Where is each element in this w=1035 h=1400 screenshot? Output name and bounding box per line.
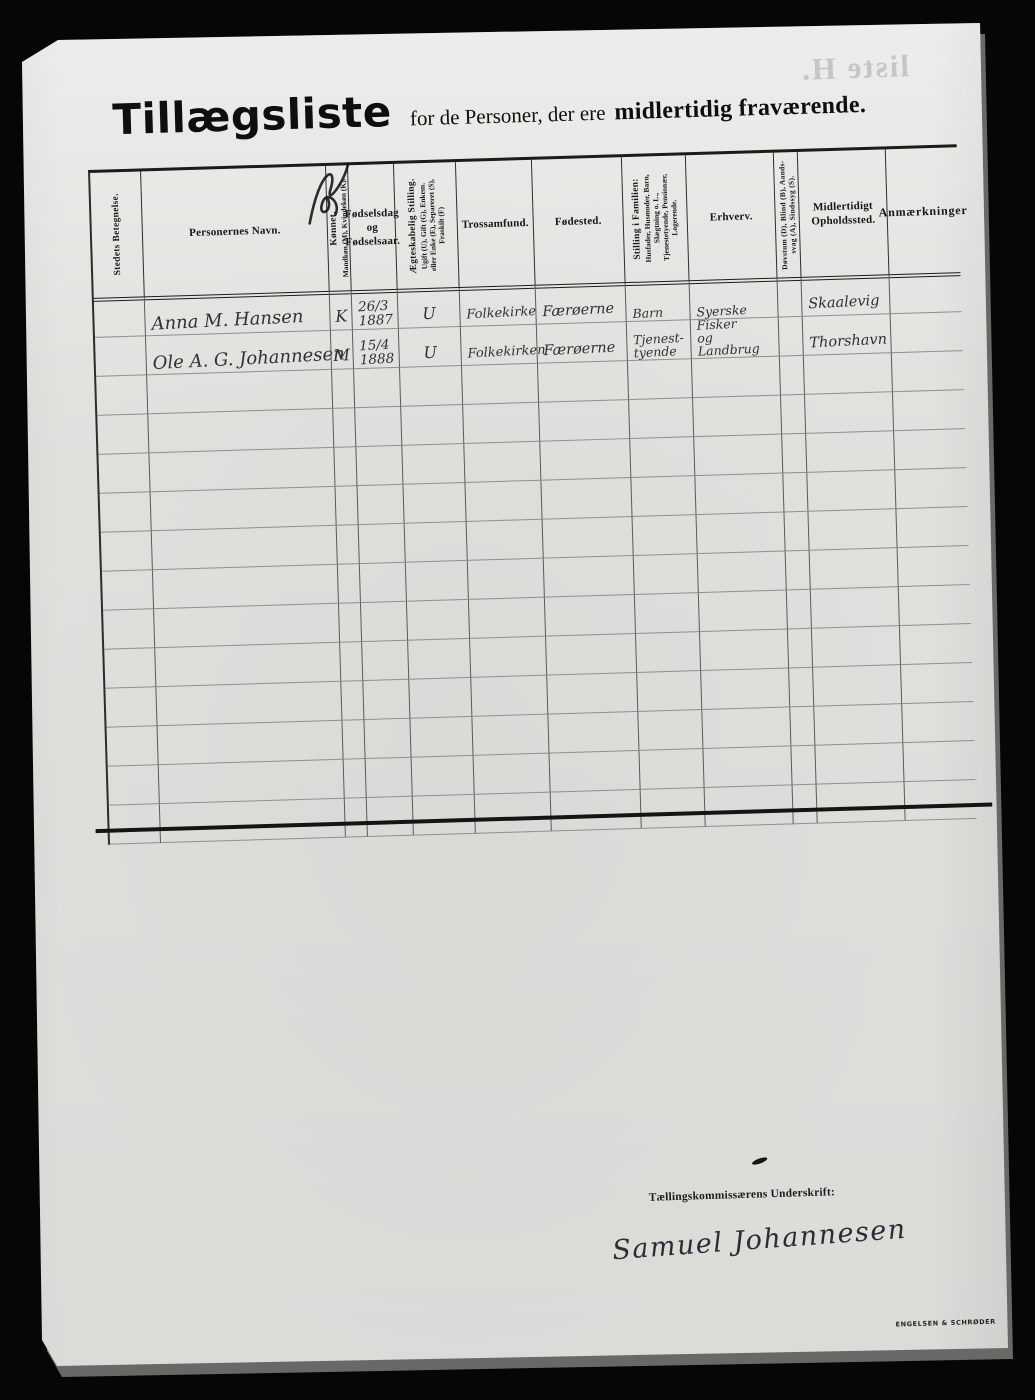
cell-midlertidigt-opholdssted-row6 xyxy=(806,470,895,512)
cell-anmaerkninger-row2 xyxy=(890,312,963,353)
cell-erhverv-row11 xyxy=(700,668,789,710)
vertical-header-text: Ægteskabelig Stilling.Ugift (U), Gift (G… xyxy=(406,177,447,273)
cell-trossamfund-row7 xyxy=(466,520,543,561)
cell-midlertidigt-opholdssted-row12 xyxy=(813,704,902,746)
cell-midlertidigt-opholdssted-row10 xyxy=(811,626,900,668)
cell-fodested-row9 xyxy=(544,595,635,637)
cell-dovstum-blind-row2 xyxy=(778,317,803,357)
cell-midlertidigt-opholdssted-row1: Skaalevig xyxy=(801,275,890,317)
cell-fodselsdag-row2: 15/4 1888 xyxy=(352,329,399,369)
cell-fodselsdag-row1: 26/3 1887 xyxy=(351,290,398,330)
cell-midlertidigt-opholdssted-row4 xyxy=(804,392,893,434)
printer-imprint: ENGELSEN & SCHRØDER xyxy=(895,1318,995,1329)
cell-konnet-row7 xyxy=(336,525,359,565)
cell-fodested-row4 xyxy=(538,400,629,442)
cell-erhverv-row5 xyxy=(693,435,782,477)
handwritten-entry: Skaalevig xyxy=(802,293,882,316)
cell-erhverv-row13 xyxy=(702,746,791,788)
census-form-page: liste H. Tillægsliste for de Personer, d… xyxy=(0,0,1035,1400)
cell-konnet-row5 xyxy=(333,447,356,487)
cell-aegteskabelig-stilling-row1: U xyxy=(397,288,460,329)
cell-fodselsdag-row13 xyxy=(365,758,412,798)
cell-personernes-navn-row8 xyxy=(152,565,338,609)
cell-stilling-i-familien-row12 xyxy=(637,710,702,751)
cell-trossamfund-row11 xyxy=(470,676,547,717)
column-label: Døvstum (D), Blind (B), Aands- svag (A),… xyxy=(777,160,798,270)
cell-personernes-navn-row7 xyxy=(151,526,337,570)
vertical-header-text: Døvstum (D), Blind (B), Aands- svag (A),… xyxy=(777,160,798,270)
cell-anmaerkninger-row1 xyxy=(888,273,961,314)
cell-dovstum-blind-row14 xyxy=(792,785,817,825)
cell-dovstum-blind-row8 xyxy=(785,551,810,591)
cell-aegteskabelig-stilling-row3 xyxy=(399,366,462,407)
cell-konnet-row3 xyxy=(331,369,354,409)
cell-konnet-row8 xyxy=(337,564,360,604)
vertical-header-text: Stilling i Familien:Husfader, Husmoder, … xyxy=(630,174,680,263)
column-label: Fødselsdag og Fødselsaar. xyxy=(344,205,400,249)
column-header-personernes-navn: Personernes Navn. xyxy=(140,166,329,297)
cell-midlertidigt-opholdssted-row9 xyxy=(810,587,899,629)
title-subtitle: for de Personer, der ere xyxy=(410,101,606,132)
cell-stedets-betegnelse-row9 xyxy=(103,609,154,649)
handwritten-entry: Færøerne xyxy=(536,301,617,324)
cell-fodested-row13 xyxy=(549,751,640,793)
census-table-grid: Stedets Betegnelse.Personernes Navn.Kønn… xyxy=(88,144,977,844)
cell-fodselsdag-row5 xyxy=(355,446,402,486)
cell-anmaerkninger-row5 xyxy=(893,429,966,470)
cell-personernes-navn-row6 xyxy=(150,487,336,531)
cell-stilling-i-familien-row1: Barn xyxy=(625,281,690,322)
cell-anmaerkninger-row4 xyxy=(892,390,965,431)
cell-konnet-row13 xyxy=(343,759,366,799)
cell-personernes-navn-row3 xyxy=(146,370,332,414)
cell-fodselsdag-row11 xyxy=(362,680,409,720)
cell-anmaerkninger-row9 xyxy=(898,585,971,626)
cell-personernes-navn-row14 xyxy=(159,799,345,843)
cell-dovstum-blind-row9 xyxy=(786,590,811,630)
cell-fodested-row2: Færøerne xyxy=(536,322,627,364)
handwritten-entry: Barn xyxy=(626,306,665,322)
cell-erhverv-row9 xyxy=(698,590,787,632)
cell-erhverv-row14 xyxy=(704,785,793,827)
cell-stilling-i-familien-row8 xyxy=(633,554,698,595)
cell-fodested-row6 xyxy=(540,478,631,520)
cell-midlertidigt-opholdssted-row11 xyxy=(812,665,901,707)
handwritten-entry: Tjenest- tyende xyxy=(627,331,687,361)
cell-erhverv-row10 xyxy=(699,629,788,671)
handwritten-entry: 26/3 1887 xyxy=(352,299,396,330)
column-header-stedets-betegnelse: Stedets Betegnelse. xyxy=(90,171,144,298)
column-label: Personernes Navn. xyxy=(189,223,281,240)
cell-stilling-i-familien-row11 xyxy=(636,671,701,712)
cell-aegteskabelig-stilling-row14 xyxy=(412,795,475,836)
form-title: Tillægsliste for de Personer, der ere mi… xyxy=(112,73,867,144)
cell-anmaerkninger-row14 xyxy=(904,780,977,821)
cell-midlertidigt-opholdssted-row5 xyxy=(805,431,894,473)
cell-personernes-navn-row11 xyxy=(155,682,341,726)
cell-erhverv-row1: Syerske xyxy=(689,279,778,321)
cell-anmaerkninger-row7 xyxy=(895,507,968,548)
cell-aegteskabelig-stilling-row13 xyxy=(411,756,474,797)
cell-fodselsdag-row7 xyxy=(358,524,405,564)
cell-konnet-row1: K xyxy=(329,291,352,331)
cell-konnet-row4 xyxy=(332,408,355,448)
form-content: Tillægsliste for de Personer, der ere mi… xyxy=(86,70,1006,1376)
cell-stilling-i-familien-row14 xyxy=(640,788,705,829)
cell-dovstum-blind-row4 xyxy=(780,395,805,435)
cell-stilling-i-familien-row5 xyxy=(629,437,694,478)
column-header-fodselsdag: Fødselsdag og Fødselsaar. xyxy=(347,164,397,291)
cell-fodselsdag-row3 xyxy=(353,368,400,408)
cell-aegteskabelig-stilling-row11 xyxy=(408,678,471,719)
cell-fodested-row1: Færøerne xyxy=(535,283,626,325)
cell-dovstum-blind-row10 xyxy=(787,629,812,669)
cell-dovstum-blind-row6 xyxy=(782,473,807,513)
cell-stedets-betegnelse-row14 xyxy=(109,804,160,844)
cell-erhverv-row12 xyxy=(701,707,790,749)
cell-fodested-row14 xyxy=(550,790,641,832)
cell-stedets-betegnelse-row7 xyxy=(101,531,152,571)
cell-midlertidigt-opholdssted-row14 xyxy=(816,782,905,824)
cell-aegteskabelig-stilling-row4 xyxy=(400,405,463,446)
title-main: Tillægsliste xyxy=(112,87,393,144)
cell-stilling-i-familien-row2: Tjenest- tyende xyxy=(626,320,691,361)
cell-personernes-navn-row9 xyxy=(153,604,339,648)
cell-konnet-row6 xyxy=(335,486,358,526)
cell-anmaerkninger-row12 xyxy=(901,702,974,743)
column-sublabel: Ugift (U), Gift (G), Enkem. eller Enke (… xyxy=(417,177,447,273)
cell-fodested-row11 xyxy=(546,673,637,715)
cell-fodested-row12 xyxy=(547,712,638,754)
scanned-photo-background: liste H. Tillægsliste for de Personer, d… xyxy=(0,0,1035,1400)
cell-aegteskabelig-stilling-row8 xyxy=(405,561,468,602)
cell-trossamfund-row14 xyxy=(474,793,551,834)
cell-stilling-i-familien-row10 xyxy=(635,632,700,673)
column-header-stilling-i-familien: Stilling i Familien:Husfader, Husmoder, … xyxy=(621,155,689,283)
cell-trossamfund-row9 xyxy=(468,598,545,639)
cell-fodested-row5 xyxy=(539,439,630,481)
cell-stilling-i-familien-row7 xyxy=(632,515,697,556)
handwritten-entry: U xyxy=(423,345,438,366)
cell-midlertidigt-opholdssted-row13 xyxy=(814,743,903,785)
handwritten-entry: K xyxy=(335,308,348,329)
column-header-trossamfund: Trossamfund. xyxy=(455,160,535,288)
cell-fodested-row10 xyxy=(545,634,636,676)
cell-trossamfund-row5 xyxy=(463,442,540,483)
cell-konnet-row2: M xyxy=(330,330,353,370)
cell-stedets-betegnelse-row10 xyxy=(104,648,155,688)
cell-anmaerkninger-row10 xyxy=(899,624,972,665)
cell-trossamfund-row1: Folkekirke xyxy=(459,286,536,327)
cell-midlertidigt-opholdssted-row2: Thorshavn xyxy=(802,314,891,356)
cell-fodselsdag-row9 xyxy=(360,602,407,642)
column-header-aegteskabelig-stilling: Ægteskabelig Stilling.Ugift (U), Gift (G… xyxy=(393,162,459,290)
cell-trossamfund-row6 xyxy=(464,481,541,522)
column-header-fodested: Fødested. xyxy=(531,157,625,286)
cell-aegteskabelig-stilling-row2: U xyxy=(398,327,461,368)
handwritten-entry: Folkekirke xyxy=(460,305,538,327)
handwritten-entry: Færøerne xyxy=(537,340,618,363)
cell-konnet-row12 xyxy=(341,720,364,760)
cell-trossamfund-row12 xyxy=(471,715,548,756)
cell-personernes-navn-row4 xyxy=(147,409,333,453)
cell-personernes-navn-row13 xyxy=(158,760,344,804)
cell-aegteskabelig-stilling-row9 xyxy=(406,600,469,641)
cell-stedets-betegnelse-row5 xyxy=(98,453,149,493)
cell-dovstum-blind-row3 xyxy=(779,356,804,396)
column-header-midlertidigt-opholdssted: Midlertidigt Opholdssted. xyxy=(797,149,889,278)
cell-konnet-row11 xyxy=(340,681,363,721)
cell-stilling-i-familien-row3 xyxy=(627,359,692,400)
title-emphasis: midlertidig fraværende. xyxy=(614,92,866,126)
cell-anmaerkninger-row6 xyxy=(894,468,967,509)
cell-dovstum-blind-row7 xyxy=(783,512,808,552)
handwritten-entry: Thorshavn xyxy=(803,332,890,356)
cell-midlertidigt-opholdssted-row7 xyxy=(807,509,896,551)
cell-fodselsdag-row10 xyxy=(361,641,408,681)
cell-trossamfund-row13 xyxy=(473,754,550,795)
cell-konnet-row9 xyxy=(338,603,361,643)
cell-stedets-betegnelse-row11 xyxy=(105,687,156,727)
cell-personernes-navn-row2: Ole A. G. Johannesen xyxy=(145,331,331,375)
cell-stilling-i-familien-row6 xyxy=(630,476,695,517)
cell-midlertidigt-opholdssted-row3 xyxy=(803,353,892,395)
handwritten-entry: M xyxy=(333,347,350,369)
cell-konnet-row10 xyxy=(339,642,362,682)
signature-label: Tællingskommissærens Underskrift: xyxy=(649,1186,836,1204)
cell-aegteskabelig-stilling-row7 xyxy=(404,522,467,563)
cell-konnet-row14 xyxy=(344,798,367,838)
cell-midlertidigt-opholdssted-row8 xyxy=(809,548,898,590)
column-label: Anmærkninger xyxy=(878,202,967,219)
cell-anmaerkninger-row8 xyxy=(897,546,970,587)
cell-stedets-betegnelse-row6 xyxy=(100,492,151,532)
cell-anmaerkninger-row3 xyxy=(891,351,964,392)
cell-fodselsdag-row4 xyxy=(354,407,401,447)
cell-fodested-row8 xyxy=(543,556,634,598)
cell-dovstum-blind-row5 xyxy=(781,434,806,474)
cell-stilling-i-familien-row4 xyxy=(628,398,693,439)
cell-aegteskabelig-stilling-row6 xyxy=(402,483,465,524)
handwritten-entry: 15/4 1888 xyxy=(353,338,397,369)
cell-aegteskabelig-stilling-row12 xyxy=(409,717,472,758)
cell-stilling-i-familien-row9 xyxy=(634,593,699,634)
cell-erhverv-row4 xyxy=(692,396,781,438)
cell-stedets-betegnelse-row8 xyxy=(102,570,153,610)
handwritten-entry: Folkekirken xyxy=(461,344,548,366)
cell-stilling-i-familien-row13 xyxy=(638,749,703,790)
cell-fodselsdag-row8 xyxy=(359,563,406,603)
cell-trossamfund-row3 xyxy=(461,364,538,405)
cell-fodselsdag-row14 xyxy=(366,797,413,837)
cell-anmaerkninger-row11 xyxy=(900,663,973,704)
column-label: Erhverv. xyxy=(710,209,753,224)
cell-aegteskabelig-stilling-row5 xyxy=(401,444,464,485)
cell-stedets-betegnelse-row3 xyxy=(96,375,147,415)
column-label: Fødested. xyxy=(555,213,602,228)
cell-erhverv-row7 xyxy=(696,513,785,555)
cell-personernes-navn-row10 xyxy=(154,643,340,687)
census-table: Stedets Betegnelse.Personernes Navn.Kønn… xyxy=(88,144,977,844)
cell-dovstum-blind-row1 xyxy=(777,278,802,318)
cell-erhverv-row6 xyxy=(694,474,783,516)
cell-trossamfund-row10 xyxy=(469,637,546,678)
cell-personernes-navn-row12 xyxy=(157,721,343,765)
commissioner-signature: Samuel Johannesen xyxy=(611,1214,907,1267)
column-sublabel: Husfader, Husmoder, Barn, Slægtning o. L… xyxy=(641,174,680,263)
cell-stedets-betegnelse-row2 xyxy=(95,336,146,376)
column-header-anmaerkninger: Anmærkninger xyxy=(885,147,961,275)
cell-fodested-row3 xyxy=(537,361,628,403)
cell-dovstum-blind-row13 xyxy=(790,746,815,786)
cell-aegteskabelig-stilling-row10 xyxy=(407,639,470,680)
cell-stedets-betegnelse-row1 xyxy=(94,297,145,337)
cell-trossamfund-row8 xyxy=(467,559,544,600)
cell-fodested-row7 xyxy=(542,517,633,559)
cell-dovstum-blind-row12 xyxy=(789,707,814,747)
column-header-erhverv: Erhverv. xyxy=(685,153,777,282)
cell-fodselsdag-row6 xyxy=(356,485,403,525)
handwritten-entry: U xyxy=(422,306,437,327)
cell-stedets-betegnelse-row4 xyxy=(97,414,148,454)
cell-erhverv-row8 xyxy=(697,552,786,594)
cell-stedets-betegnelse-row13 xyxy=(108,765,159,805)
cell-dovstum-blind-row11 xyxy=(788,668,813,708)
cell-trossamfund-row2: Folkekirken xyxy=(460,325,537,366)
cell-erhverv-row3 xyxy=(691,357,780,399)
cell-erhverv-row2: Fisker og Landbrug xyxy=(690,318,779,360)
cell-personernes-navn-row1: Anna M. Hansen xyxy=(144,292,330,336)
cell-trossamfund-row4 xyxy=(462,403,539,444)
cell-personernes-navn-row5 xyxy=(148,448,334,492)
cell-anmaerkninger-row13 xyxy=(902,741,975,782)
cell-fodselsdag-row12 xyxy=(363,719,410,759)
column-label: Stedets Betegnelse. xyxy=(110,193,123,276)
ink-smudge xyxy=(751,1156,768,1166)
column-label: Midlertidigt Opholdssted. xyxy=(811,198,876,228)
vertical-header-text: Stedets Betegnelse. xyxy=(110,193,123,276)
column-label: Trossamfund. xyxy=(462,215,529,231)
cell-stedets-betegnelse-row12 xyxy=(107,726,158,766)
handwritten-entry: Fisker og Landbrug xyxy=(690,315,779,359)
